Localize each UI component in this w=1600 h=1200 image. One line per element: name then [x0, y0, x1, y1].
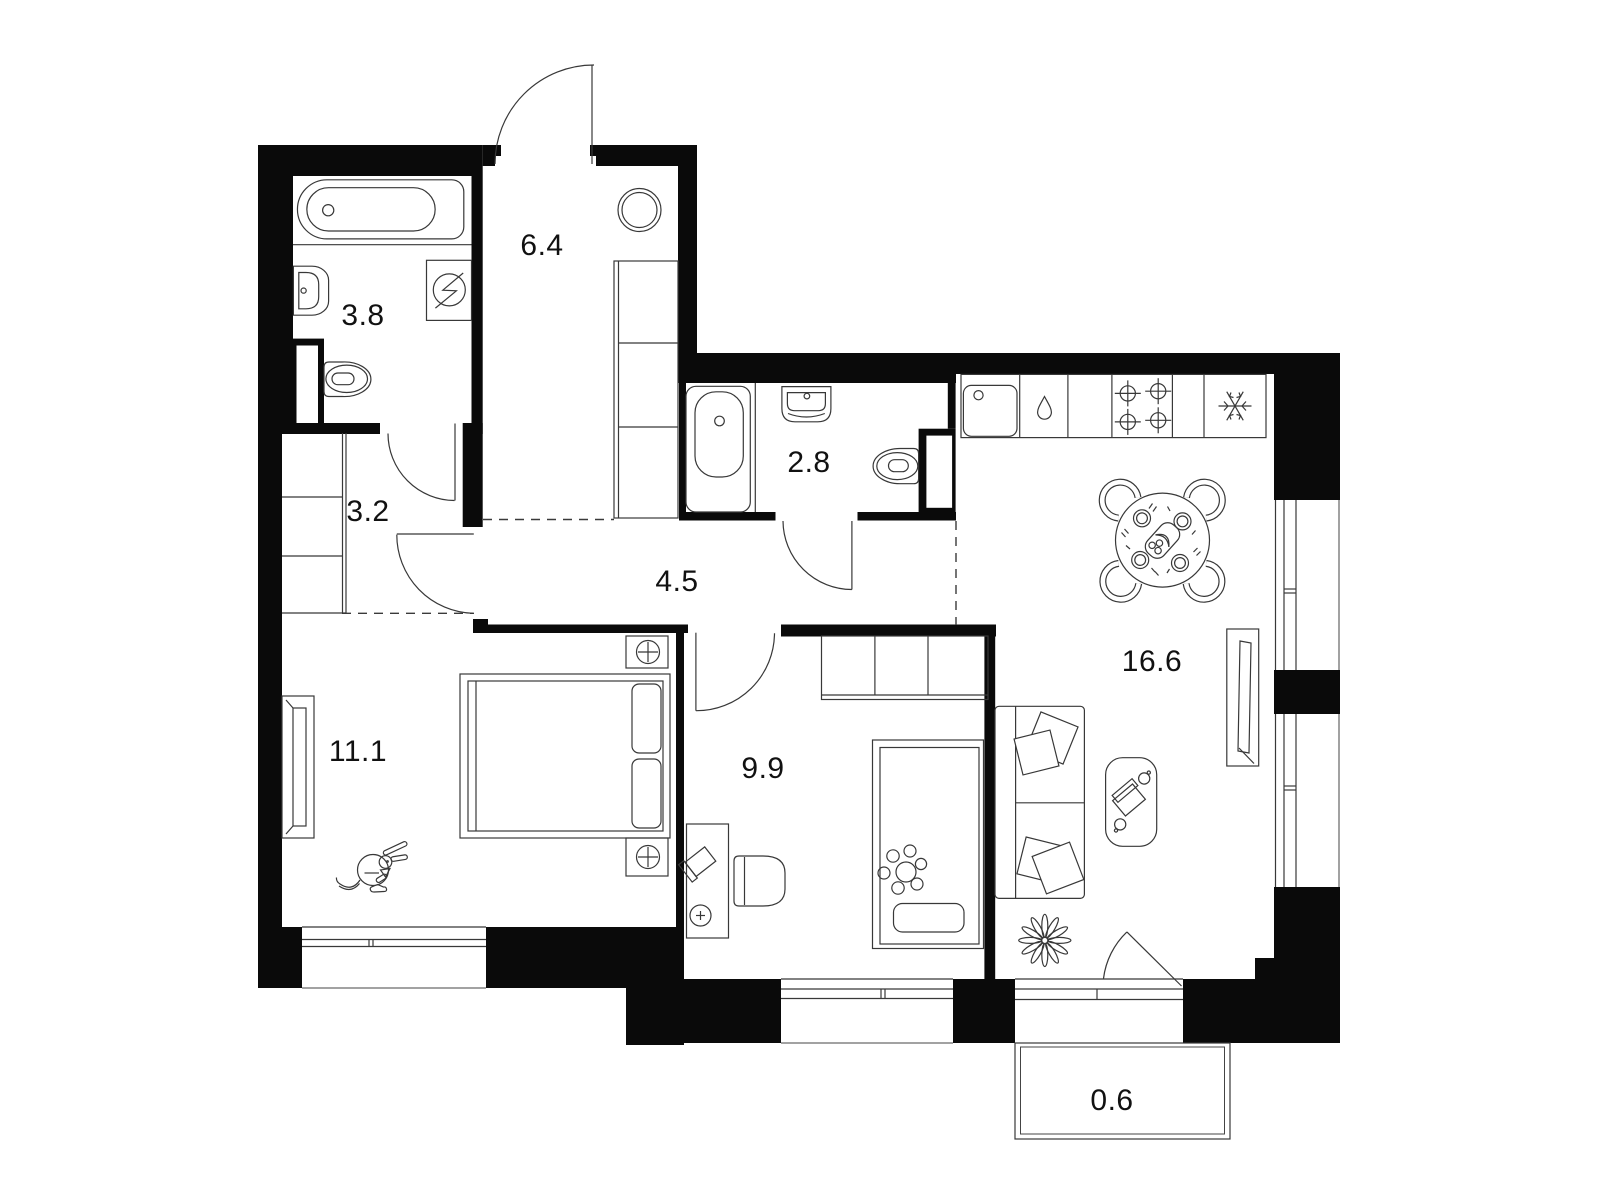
svg-text:6.4: 6.4: [520, 229, 563, 262]
svg-text:3.2: 3.2: [346, 495, 389, 528]
svg-text:3.8: 3.8: [341, 299, 384, 332]
svg-text:4.5: 4.5: [655, 565, 698, 598]
svg-text:2.8: 2.8: [787, 446, 830, 479]
svg-text:16.6: 16.6: [1122, 645, 1182, 678]
svg-text:9.9: 9.9: [741, 752, 784, 785]
svg-text:11.1: 11.1: [329, 735, 387, 768]
svg-text:0.6: 0.6: [1090, 1084, 1133, 1117]
